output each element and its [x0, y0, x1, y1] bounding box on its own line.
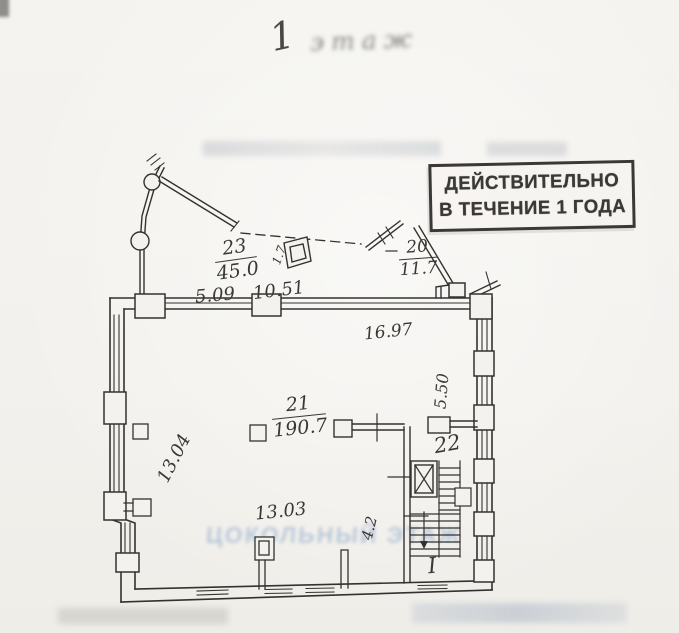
floorplan-drawing — [0, 0, 679, 633]
validity-stamp: ДЕЙСТВИТЕЛЬНО В ТЕЧЕНИЕ 1 ГОДА — [428, 160, 635, 232]
room-21-label: 21 190.7 — [270, 392, 329, 440]
room-21-area: 190.7 — [272, 414, 328, 441]
room-20-area: 11.7 — [399, 258, 438, 280]
stamp-line-1: ДЕЙСТВИТЕЛЬНО — [444, 169, 619, 198]
fence-ramp — [159, 177, 239, 231]
stair-flight-roman-numeral: I — [427, 556, 438, 579]
room-20-label: 20 11.7 — [398, 238, 438, 280]
scanned-floorplan-page: ЦОКОЛЬНЫЙ ЭТАЖ — [0, 0, 679, 633]
elevator-shaft — [411, 461, 437, 497]
room-20-number: 20 — [398, 238, 437, 261]
dim-top-left: 5.09 — [194, 285, 235, 306]
room-22-label: 22 — [432, 432, 462, 457]
dim-top-right: 16.97 — [363, 322, 413, 344]
room-23-area: 45.0 — [215, 257, 260, 284]
stamp-line-2: В ТЕЧЕНИЕ 1 ГОДА — [439, 194, 626, 224]
floor-word-smudged: этаж — [310, 24, 420, 57]
columns — [124, 424, 348, 589]
room-23-label: 23 45.0 — [212, 235, 260, 283]
fence-left — [131, 154, 164, 298]
